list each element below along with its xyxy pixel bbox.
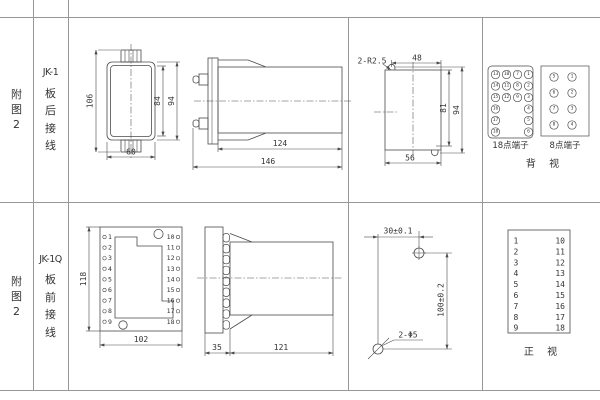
model-code-jk1: JK-1 [43,64,59,82]
bottom-draft-edge [230,315,252,329]
terminal-number: 3 [108,254,112,262]
bottom-mounting-hole [119,321,127,329]
terminal-number: 17 [493,117,499,123]
drawing-canvas: 106 84 94 60 124 [0,0,600,400]
slot-radius-label: 2-R2.5 [358,57,387,66]
hole-diameter-label: 2-Φ5 [398,331,417,340]
terminal-number: 4 [571,122,574,128]
terminal-number: 7 [108,297,112,305]
terminal-circles-8 [550,73,576,129]
terminal-block-8pt: 5 1 6 2 7 3 8 4 8点端子 背 视 [526,66,589,170]
terminal-number: 9 [516,94,519,100]
dim-case-height: 94 [167,96,176,106]
terminal-number: 6 [108,286,112,294]
terminal-number: 12 [167,254,175,262]
terminal-number: 13 [493,71,499,77]
terminal-number: 11 [167,244,175,252]
terminal-number: 18 [493,129,499,135]
dim-overall-height: 94 [452,105,461,115]
table-cell: 17 [555,313,565,322]
dim-top-width: 48 [412,54,422,63]
table-cell: 1 [514,237,519,246]
terminal-table: 1 2 3 4 5 6 7 8 9 10 11 12 13 14 15 16 1… [508,230,570,358]
left-terminal-circles [103,235,106,323]
terminal-number: 9 [108,318,112,326]
terminal-number: 5 [108,275,112,283]
fig-label-top: 附 图 2 [0,17,33,202]
table-cell: 7 [514,302,519,311]
table-cell: 8 [514,313,519,322]
jk1q-side-view: 35 121 [197,227,343,356]
terminal-number: 7 [553,106,556,112]
terminal-number: 12 [504,94,510,100]
dim-inner-height: 84 [153,96,162,106]
table-cell: 2 [514,247,519,256]
dim-height: 118 [79,272,88,287]
terminal-number: 1 [527,71,530,77]
relay-outline [115,237,173,318]
model-code-jk1q: JK-1Q [39,251,61,269]
case-body [230,242,333,315]
terminal-bumps [223,234,230,330]
terminal-number: 8 [108,307,112,315]
terminal-18pt-label: 18点端子 [492,140,529,151]
terminal-number: 2 [108,244,112,252]
terminal-number: 14 [167,275,175,283]
terminal-number: 1 [571,74,574,80]
terminal-number: 4 [527,106,530,112]
sheet-grid [0,0,600,391]
table-cell: 11 [555,247,565,256]
dim-hole-spacing-v: 100±0.2 [437,283,446,317]
bottom-terminal-screw [199,118,208,129]
table-cell: 6 [514,291,519,300]
table-cell: 13 [555,269,565,278]
terminal-number: 3 [571,106,574,112]
terminal-number: 7 [516,71,519,77]
dim-hole-spacing-h: 30±0.1 [384,227,413,236]
top-draft-edge [230,234,252,243]
front-view-label: 正 视 [524,345,562,358]
jk1-side-view: 124 146 [193,58,352,170]
model-label-bottom: JK-1Q 板 前 接 线 [33,202,68,390]
top-mounting-hole [154,229,163,238]
fig-label-bottom: 附 图 2 [0,202,33,390]
terminal-number: 5 [527,117,530,123]
terminal-number: 4 [108,265,112,273]
table-cell: 4 [514,269,519,278]
top-draft-edge [218,60,266,67]
drawing-sheet: 106 84 94 60 124 [0,0,600,400]
mounting-plate [205,227,223,333]
jk1q-front-view: 1 2 3 4 5 6 7 8 9 10 11 12 13 14 15 16 1… [79,227,182,348]
terminal-number: 1 [108,233,112,241]
terminal-number: 8 [553,122,556,128]
terminal-number: 2 [527,83,530,89]
top-screw-head [193,76,199,83]
case-body [218,67,342,133]
dim-width: 102 [134,335,149,344]
terminal-number: 15 [493,94,499,100]
hole-slash-line [368,338,389,359]
bottom-right-key-slot [432,150,438,156]
table-cell: 18 [555,324,565,333]
dim-inner-height: 81 [439,103,448,113]
terminal-number: 15 [167,286,175,294]
table-cell: 9 [514,324,519,333]
terminal-number: 14 [493,83,499,89]
dim-bottom-width: 56 [405,154,415,163]
terminal-number: 16 [167,297,175,305]
dim-case-length: 121 [274,343,289,352]
terminal-number: 2 [571,90,574,96]
dim-total-length: 146 [261,157,276,166]
terminal-block-18pt: 13 10 7 1 14 11 8 2 15 12 9 3 16 4 17 5 … [488,66,533,151]
terminal-8pt-label: 8点端子 [550,140,581,151]
terminal-number: 16 [493,106,499,112]
bottom-screw-head [193,120,199,127]
drill-plan: 30±0.1 100±0.2 2-Φ5 [364,227,452,360]
table-cell: 15 [555,291,565,300]
table-cell: 10 [555,237,565,246]
table-cell: 5 [514,280,519,289]
terminal-number: 8 [516,83,519,89]
terminal-circles-18 [491,70,532,136]
rear-view-label: 背 视 [526,157,564,170]
top-terminal-screw [199,74,208,85]
dim-width: 60 [126,148,136,157]
dim-case-length: 124 [273,139,288,148]
terminal-number: 3 [527,94,530,100]
table-cell: 12 [555,258,565,267]
table-cell: 3 [514,258,519,267]
terminal-block-outline [541,66,589,136]
jk1-panel-cutout: 2-R2.5 48 81 94 56 [358,54,465,167]
model-label-top: JK-1 板 后 接 线 [33,17,68,202]
table-cell: 16 [555,302,565,311]
terminal-number: 18 [167,318,175,326]
dim-flange-depth: 35 [212,343,222,352]
terminal-number: 13 [167,265,175,273]
terminal-number: 5 [553,74,556,80]
right-terminal-circles [176,235,179,323]
terminal-number: 6 [527,129,530,135]
terminal-number: 11 [504,83,510,89]
dim-overall-height: 106 [86,94,95,109]
terminal-number: 6 [553,90,556,96]
table-cell: 14 [555,280,565,289]
jk1-front-view: 106 84 94 60 [86,44,181,160]
terminal-number: 17 [167,307,175,315]
terminal-number: 10 [504,71,510,77]
bottom-draft-edge [218,133,266,140]
terminal-number: 10 [167,233,175,241]
